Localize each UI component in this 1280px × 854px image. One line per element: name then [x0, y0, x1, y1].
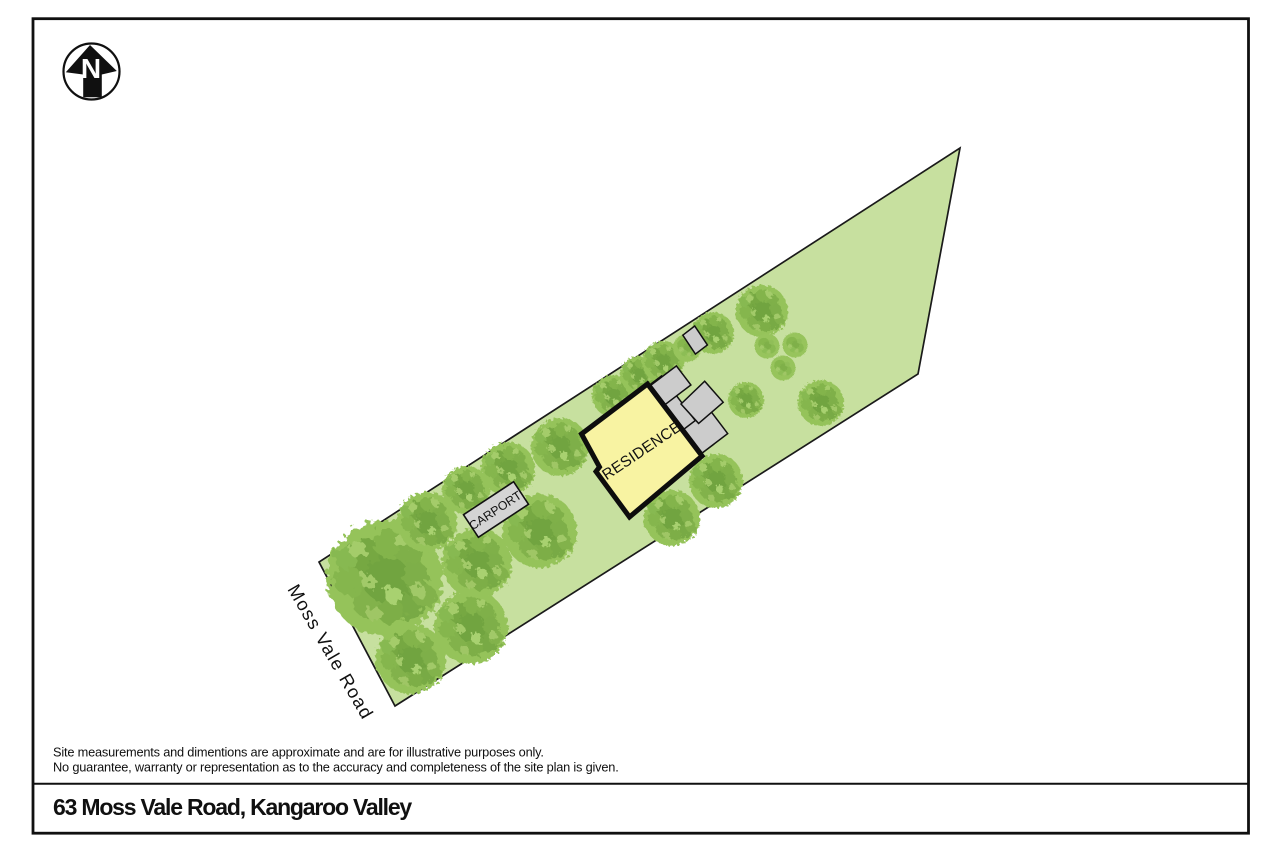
svg-text:No guarantee, warranty or repr: No guarantee, warranty or representation… [53, 760, 619, 775]
svg-text:63 Moss Vale Road, Kangaroo Va: 63 Moss Vale Road, Kangaroo Valley [53, 794, 412, 820]
svg-text:N: N [81, 53, 101, 84]
svg-text:Site measurements and dimentio: Site measurements and dimentions are app… [53, 745, 544, 760]
